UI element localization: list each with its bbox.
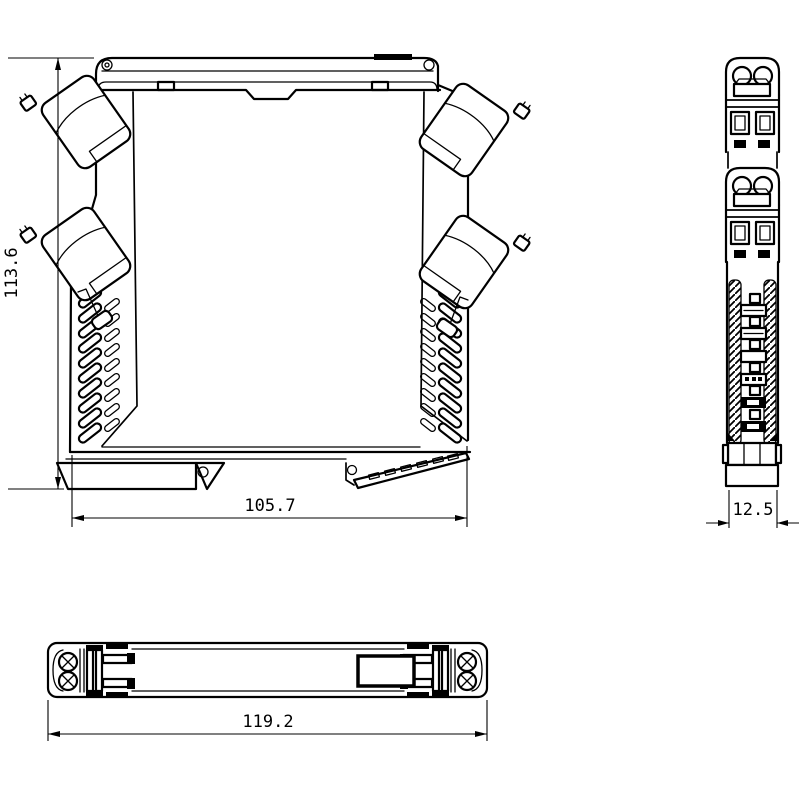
dimension-arrow-icon: [777, 520, 788, 526]
latch-pivot-hole: [348, 466, 357, 475]
dimension-arrow-icon: [475, 731, 487, 737]
wire-opening: [756, 222, 774, 244]
cap-cutout: [158, 82, 174, 90]
din-release-latch: [354, 453, 469, 488]
terminal-tip: [90, 309, 113, 330]
side-center-elements: [741, 294, 766, 432]
terminal-block: [416, 197, 532, 319]
side-foot: [723, 443, 781, 486]
side-view: 12.5: [706, 58, 799, 528]
side-body: [723, 262, 781, 486]
bottom-view: 119.2: [48, 643, 487, 741]
side-vent-column: [729, 280, 741, 445]
cap-screw-icon: [424, 60, 434, 70]
front-vents-left: [77, 287, 120, 444]
front-view: 113.6 105.7: [2, 54, 532, 527]
bottom-outline: [48, 643, 487, 697]
cap-screw-icon: [102, 60, 112, 70]
cap-marker: [374, 54, 412, 60]
terminal-block: [18, 189, 134, 311]
dimension-depth: 12.5: [706, 490, 799, 528]
cap-cutout: [372, 82, 388, 90]
wire-opening: [731, 112, 749, 134]
dimension-arrow-icon: [718, 520, 729, 526]
front-top-cap: [96, 54, 440, 99]
depth-dimension-label: 12.5: [733, 500, 774, 520]
technical-drawing-page: 113.6 105.7: [0, 0, 800, 800]
side-terminal-assembly-1: [726, 58, 779, 152]
width-dimension-label: 105.7: [244, 496, 295, 516]
front-terminals-left: [18, 57, 134, 331]
dimension-arrow-icon: [455, 515, 467, 521]
side-terminal-assembly-2: [726, 152, 779, 262]
height-dimension-label: 113.6: [2, 247, 22, 298]
dimension-arrow-icon: [55, 477, 61, 489]
terminal-block: [18, 57, 134, 179]
wire-opening: [756, 112, 774, 134]
dimension-arrow-icon: [72, 515, 84, 521]
dimension-arrow-icon: [48, 731, 60, 737]
din-module-drawing: 113.6 105.7: [0, 0, 800, 800]
dimension-arrow-icon: [55, 58, 61, 70]
din-clip: [57, 463, 196, 489]
label-window: [358, 656, 414, 686]
front-terminals-right: [416, 65, 532, 339]
bottom-left-terminal: [53, 644, 135, 697]
wire-opening: [731, 222, 749, 244]
dimension-length: 119.2: [48, 700, 487, 741]
length-dimension-label: 119.2: [242, 712, 293, 732]
